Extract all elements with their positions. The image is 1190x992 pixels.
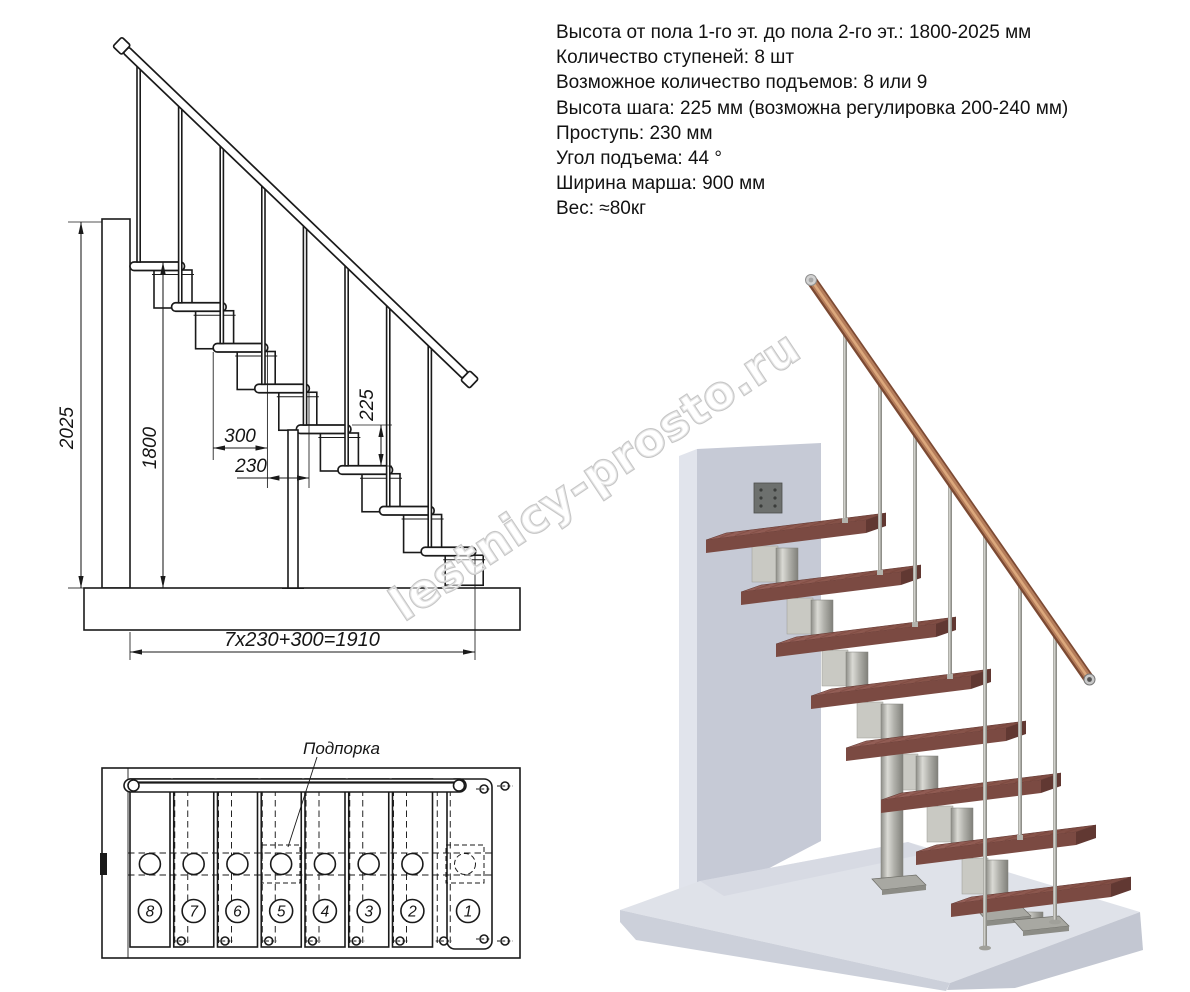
baluster <box>428 341 431 547</box>
baluster-rod <box>913 426 917 626</box>
step-number: 4 <box>321 904 330 921</box>
rod-connector <box>947 674 953 679</box>
handrail-ball-left <box>128 780 139 791</box>
module-circle <box>139 854 160 875</box>
module-circle <box>314 854 335 875</box>
wall-mount-plate <box>754 483 782 513</box>
wall-side-face <box>679 449 697 921</box>
step-number: 3 <box>364 904 373 921</box>
module-circle <box>271 854 292 875</box>
baluster <box>137 62 140 262</box>
rod-connector <box>877 570 883 575</box>
baluster-rod <box>983 527 987 946</box>
step-number: 1 <box>464 904 473 921</box>
baluster-rod <box>878 376 882 574</box>
plan-steps: 87654321 <box>130 779 513 949</box>
side-view-steps <box>130 62 485 585</box>
step-tread <box>130 262 185 271</box>
module-circle <box>358 854 379 875</box>
module-circle <box>227 854 248 875</box>
baluster <box>262 182 265 385</box>
step-number: 5 <box>277 904 286 921</box>
plan-handrail <box>124 779 466 792</box>
dim-total-run: 7x230+300=1910 <box>224 629 380 651</box>
rod-connector <box>912 622 918 627</box>
column-bracket <box>752 546 778 582</box>
support-label: Подпорка <box>303 739 380 758</box>
step-number: 7 <box>189 904 199 921</box>
rod-connector <box>842 518 848 523</box>
dim-1800: 1800 <box>140 426 161 469</box>
drawing-canvas: 2025 1800 300 230 225 7x230+300=1910 876… <box>0 0 1190 992</box>
step-tread <box>213 344 268 353</box>
upper-floor-slab <box>102 219 130 588</box>
step-number: 6 <box>233 904 242 921</box>
baluster-rod <box>843 325 847 522</box>
baluster <box>220 142 223 344</box>
dim-225: 225 <box>357 389 378 422</box>
rod-foot <box>979 946 991 951</box>
plan-step-plank <box>447 779 492 949</box>
dim-300: 300 <box>224 426 256 447</box>
plan-view-drawing: 87654321 Подпорка <box>100 739 520 958</box>
step-tread <box>296 425 351 434</box>
dim-230: 230 <box>234 456 267 477</box>
step-number: 8 <box>146 904 155 921</box>
step-tread <box>380 507 435 516</box>
baluster-rod <box>948 477 952 678</box>
baluster <box>179 102 182 303</box>
baluster <box>345 262 348 466</box>
rod-connector <box>1017 835 1023 840</box>
baluster-rod <box>1018 578 1022 839</box>
column-bracket <box>787 598 813 634</box>
staircase-spec-sheet: Высота от пола 1-го эт. до пола 2-го эт.… <box>0 0 1190 992</box>
column-bracket <box>822 650 848 686</box>
baluster-rod <box>1053 628 1057 920</box>
module-circle <box>183 854 204 875</box>
step-tread <box>172 303 227 312</box>
support-post <box>282 430 304 589</box>
handrail-ball-right <box>454 780 465 791</box>
module-circle <box>402 854 423 875</box>
dim-2025: 2025 <box>57 406 78 450</box>
step-number: 2 <box>407 904 417 921</box>
rod-foot <box>1049 920 1061 925</box>
column-bracket <box>927 806 953 842</box>
baluster <box>387 301 390 506</box>
side-view-handrail <box>113 37 479 388</box>
column-bracket <box>857 702 883 738</box>
step-tread <box>255 384 309 393</box>
step-tread <box>338 466 393 475</box>
wall-anchor-tick <box>100 853 107 875</box>
baluster <box>303 222 306 425</box>
